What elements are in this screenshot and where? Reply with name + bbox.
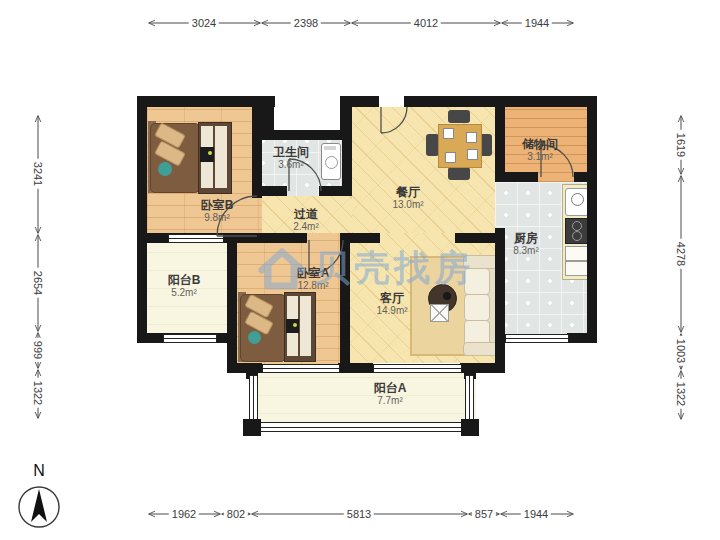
room-name: 储物间 [522, 137, 558, 151]
dim-right-3: 1003 [675, 336, 687, 366]
dim-left-2: 2654 [32, 268, 44, 298]
room-area: 8.3m² [513, 245, 539, 257]
room-area: 3.1m² [522, 151, 558, 163]
label-balcony-b: 阳台B 5.2m² [168, 273, 201, 299]
dim-right-4: 1322 [675, 379, 687, 409]
label-dining: 餐厅 13.0m² [392, 185, 423, 211]
dim-top-2: 2398 [291, 17, 321, 29]
room-name: 卫生间 [273, 145, 309, 159]
room-name: 阳台A [374, 381, 407, 395]
room-name: 卧室B [201, 198, 234, 212]
dim-right-1: 1619 [675, 130, 687, 160]
room-area: 7.7m² [374, 395, 407, 407]
dim-left-1: 3241 [32, 159, 44, 189]
label-balcony-a: 阳台A 7.7m² [374, 381, 407, 407]
room-area: 9.8m² [201, 212, 234, 224]
dim-bottom-1: 1962 [169, 508, 199, 520]
north-label: N [33, 462, 45, 480]
room-name: 厨房 [513, 231, 539, 245]
dim-top-3: 4012 [411, 17, 441, 29]
label-bedroom-a: 卧室A 12.8m² [297, 266, 330, 292]
plan-overlay [0, 0, 720, 540]
room-name: 阳台B [168, 273, 201, 287]
room-area: 3.6m² [273, 159, 309, 171]
room-area: 2.4m² [293, 221, 319, 233]
dim-bottom-3: 5813 [344, 508, 374, 520]
label-living: 客厅 14.9m² [376, 291, 407, 317]
room-name: 卧室A [297, 266, 330, 280]
dim-right-2: 4278 [675, 239, 687, 269]
dim-bottom-4: 857 [472, 508, 496, 520]
label-kitchen: 厨房 8.3m² [513, 231, 539, 257]
label-bedroom-b: 卧室B 9.8m² [201, 198, 234, 224]
label-bathroom: 卫生间 3.6m² [273, 145, 309, 171]
dim-top-1: 3024 [189, 17, 219, 29]
room-name: 过道 [293, 207, 319, 221]
room-name: 客厅 [376, 291, 407, 305]
dimension-lines [38, 23, 681, 514]
room-area: 14.9m² [376, 305, 407, 317]
room-area: 12.8m² [297, 280, 330, 292]
label-storage: 储物间 3.1m² [522, 137, 558, 163]
dim-bottom-2: 802 [224, 508, 248, 520]
dim-left-4: 1322 [32, 378, 44, 408]
north-arrow-icon [19, 487, 59, 527]
dim-top-4: 1944 [522, 17, 552, 29]
room-area: 13.0m² [392, 199, 423, 211]
room-area: 5.2m² [168, 287, 201, 299]
dim-bottom-5: 1944 [521, 508, 551, 520]
room-name: 餐厅 [392, 185, 423, 199]
label-hallway: 过道 2.4m² [293, 207, 319, 233]
dim-left-3: 999 [32, 338, 44, 362]
floor-plan-canvas: 3024 2398 4012 1944 1962 802 5813 857 19… [0, 0, 720, 540]
